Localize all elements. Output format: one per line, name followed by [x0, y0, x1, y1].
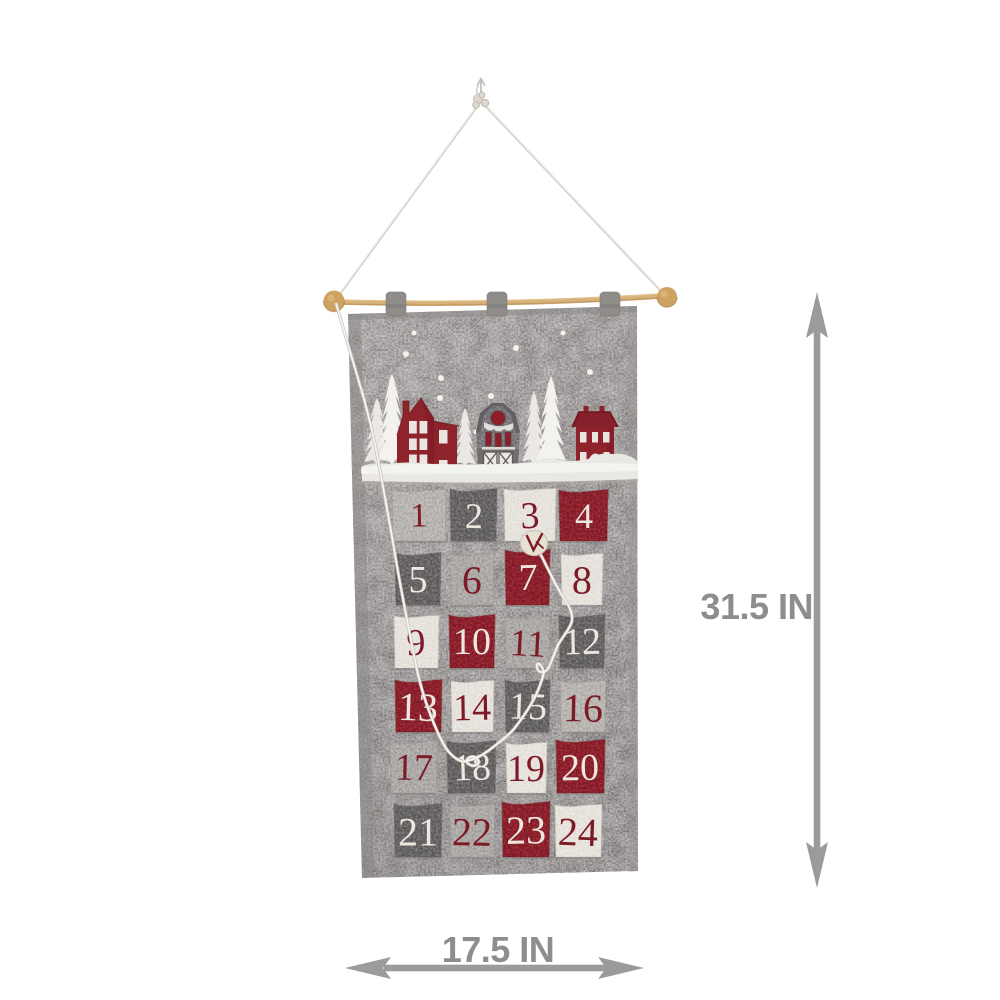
- svg-text:22: 22: [452, 809, 493, 855]
- svg-text:1: 1: [410, 497, 428, 534]
- svg-text:21: 21: [398, 810, 438, 855]
- svg-text:24: 24: [557, 809, 599, 855]
- svg-text:8: 8: [572, 557, 593, 602]
- svg-text:2: 2: [465, 496, 484, 536]
- svg-text:4: 4: [575, 496, 593, 536]
- svg-text:7: 7: [518, 557, 538, 599]
- svg-text:20: 20: [561, 747, 600, 790]
- svg-text:17: 17: [395, 747, 434, 790]
- svg-text:19: 19: [507, 748, 545, 790]
- svg-text:11: 11: [509, 622, 548, 666]
- svg-text:17.5 IN: 17.5 IN: [442, 929, 555, 970]
- svg-text:6: 6: [461, 557, 483, 603]
- svg-text:10: 10: [453, 621, 491, 663]
- svg-text:14: 14: [453, 687, 492, 730]
- svg-text:5: 5: [409, 559, 428, 601]
- svg-text:16: 16: [563, 685, 604, 731]
- svg-text:31.5 IN: 31.5 IN: [700, 586, 813, 627]
- svg-text:23: 23: [506, 807, 547, 853]
